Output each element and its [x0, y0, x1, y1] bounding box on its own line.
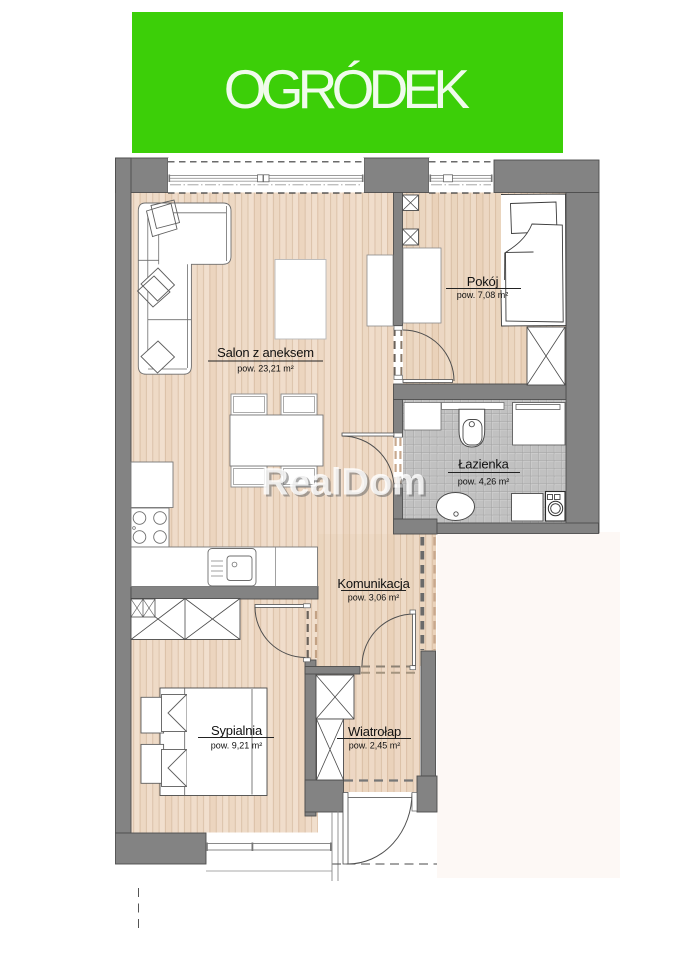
svg-text:pow. 9,21 m²: pow. 9,21 m²	[211, 741, 263, 751]
svg-text:pow. 23,21 m²: pow. 23,21 m²	[237, 364, 294, 374]
svg-text:RealDom: RealDom	[261, 462, 426, 504]
svg-text:pow. 7,08 m²: pow. 7,08 m²	[457, 290, 509, 300]
svg-text:Pokój: Pokój	[467, 274, 499, 289]
svg-text:pow. 2,45 m²: pow. 2,45 m²	[349, 741, 401, 751]
svg-text:Salon z aneksem: Salon z aneksem	[217, 345, 314, 360]
svg-text:pow. 3,06 m²: pow. 3,06 m²	[348, 593, 400, 603]
svg-text:pow. 4,26 m²: pow. 4,26 m²	[458, 477, 510, 487]
svg-text:Komunikacja: Komunikacja	[337, 576, 410, 591]
svg-text:Wiatrołap: Wiatrołap	[348, 724, 401, 739]
svg-text:OGRÓDEK: OGRÓDEK	[224, 58, 471, 120]
svg-text:Łazienka: Łazienka	[458, 457, 509, 472]
svg-text:Sypialnia: Sypialnia	[211, 723, 263, 738]
